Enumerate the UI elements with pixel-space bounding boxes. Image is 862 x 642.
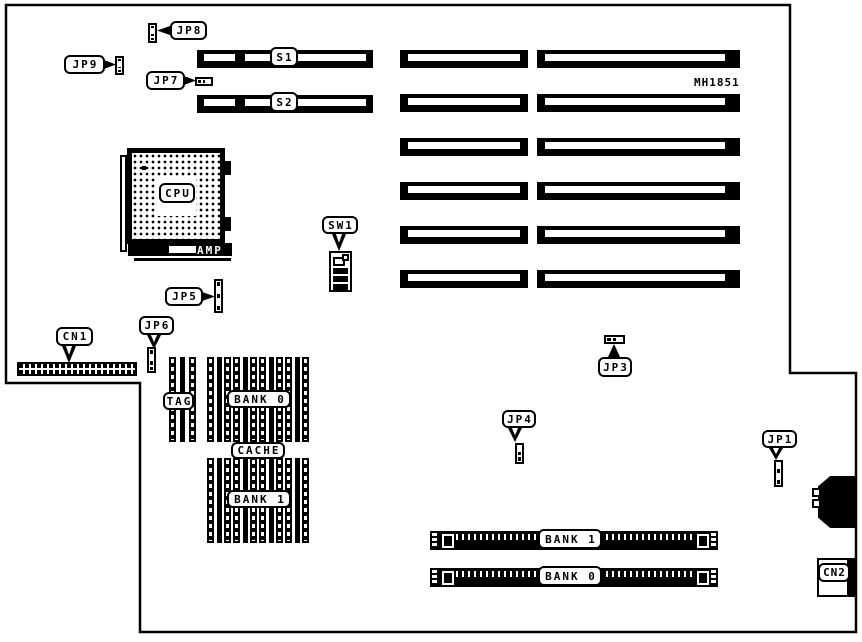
jp4-pointer xyxy=(508,428,522,442)
sw1-pointer xyxy=(332,234,346,251)
cn2-label: CN2 xyxy=(818,563,850,582)
jp6-pointer xyxy=(147,335,161,349)
jp8-jumper xyxy=(148,23,157,43)
socket-tab xyxy=(225,217,231,231)
jp8-label: JP8 xyxy=(170,21,207,40)
dip-slider-tab xyxy=(342,254,349,261)
zif-lever xyxy=(120,155,127,252)
cache-bank0-label: BANK 0 xyxy=(227,390,291,408)
jp3-label: JP3 xyxy=(598,357,632,377)
sw1-dip-switch xyxy=(329,251,352,292)
tag-label: TAG xyxy=(163,392,194,410)
jp4-jumper xyxy=(515,443,524,464)
jp1-pointer xyxy=(769,448,783,460)
jp1-label: JP1 xyxy=(762,430,797,448)
jp9-label: JP9 xyxy=(64,55,105,74)
simm-bank1-label: BANK 1 xyxy=(538,529,602,549)
socket-tab xyxy=(225,161,231,175)
dip-switch-bar xyxy=(333,268,348,274)
s1-label: S1 xyxy=(270,47,298,67)
dip-switch-bar xyxy=(333,284,348,290)
dip-switch-bar xyxy=(333,276,348,282)
jp6-jumper xyxy=(147,347,156,373)
motherboard-diagram: JP8 JP9 JP7 S1 S2 MH1851 CPU xyxy=(0,0,862,642)
cache-label: CACHE xyxy=(231,442,285,459)
keyboard-connector-pin xyxy=(812,499,821,508)
jp4-label: JP4 xyxy=(502,410,536,428)
jp9-jumper xyxy=(115,56,124,75)
keyboard-connector-pin xyxy=(812,488,821,497)
jp7-jumper xyxy=(195,77,213,86)
amp-bar-shadow xyxy=(134,258,231,261)
jp5-jumper xyxy=(214,279,223,313)
simm-bank0-label: BANK 0 xyxy=(538,566,602,586)
jp3-jumper xyxy=(604,335,625,344)
board-outline xyxy=(0,0,862,642)
cache-bank1-label: BANK 1 xyxy=(227,490,291,508)
pin1-marker xyxy=(142,166,146,170)
cpu-label: CPU xyxy=(159,183,195,203)
jp6-label: JP6 xyxy=(139,316,174,335)
amp-bar-insert xyxy=(169,246,196,253)
jp5-label: JP5 xyxy=(165,287,203,306)
cn1-label: CN1 xyxy=(56,327,93,346)
amp-brand-text: AMP xyxy=(197,244,223,257)
jp1-jumper xyxy=(774,460,783,487)
cn1-pointer xyxy=(62,346,76,363)
keyboard-connector xyxy=(818,476,856,528)
jp7-label: JP7 xyxy=(146,71,185,90)
s2-label: S2 xyxy=(270,92,298,112)
sw1-label: SW1 xyxy=(322,216,358,234)
